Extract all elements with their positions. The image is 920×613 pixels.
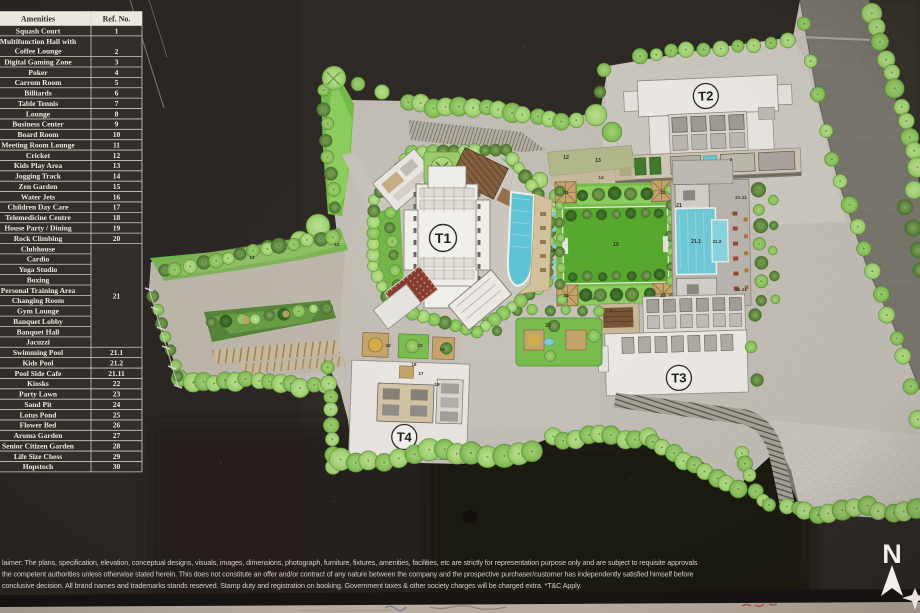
svg-text:24: 24 <box>113 400 121 409</box>
svg-text:21.2: 21.2 <box>110 358 123 367</box>
svg-text:21.1: 21.1 <box>110 348 123 357</box>
svg-text:Hopstoch: Hopstoch <box>23 462 54 471</box>
svg-text:8: 8 <box>115 109 119 118</box>
svg-text:Meeting Room Lounge: Meeting Room Lounge <box>1 140 75 149</box>
svg-text:N: N <box>882 539 902 569</box>
svg-text:16: 16 <box>113 192 121 201</box>
svg-text:21.11: 21.11 <box>108 369 125 378</box>
svg-text:Pool Side Cafe: Pool Side Cafe <box>15 369 62 378</box>
svg-text:Cardio: Cardio <box>27 255 50 264</box>
svg-text:2: 2 <box>115 47 119 56</box>
svg-text:Changing Room: Changing Room <box>12 296 65 305</box>
svg-text:Flower Bed: Flower Bed <box>20 421 58 430</box>
svg-text:Kids Play Area: Kids Play Area <box>14 161 62 170</box>
svg-text:Poker: Poker <box>28 68 48 77</box>
svg-text:Digital Gaming Zone: Digital Gaming Zone <box>4 57 72 66</box>
svg-text:27: 27 <box>113 431 121 440</box>
svg-text:Aroma Garden: Aroma Garden <box>14 431 64 440</box>
svg-text:Banquet Hall: Banquet Hall <box>17 327 60 336</box>
svg-text:18: 18 <box>113 213 121 222</box>
svg-text:Senior Citizen Garden: Senior Citizen Garden <box>2 441 75 450</box>
svg-text:28: 28 <box>113 441 121 450</box>
svg-text:Sand Pit: Sand Pit <box>24 400 52 409</box>
svg-text:3: 3 <box>115 57 119 66</box>
svg-text:Squash Court: Squash Court <box>16 26 61 35</box>
svg-text:Clubhouse: Clubhouse <box>21 244 56 253</box>
svg-text:Water Jets: Water Jets <box>21 192 55 201</box>
svg-text:20: 20 <box>113 234 121 243</box>
svg-text:Children Day Care: Children Day Care <box>8 203 70 212</box>
svg-text:Coffee Lounge: Coffee Lounge <box>15 46 63 55</box>
svg-text:House Party / Dining: House Party / Dining <box>4 224 72 233</box>
svg-text:Business Center: Business Center <box>12 120 64 129</box>
svg-text:19: 19 <box>113 224 121 233</box>
svg-text:Gym Lounge: Gym Lounge <box>17 307 60 316</box>
svg-text:Amenities: Amenities <box>21 15 55 24</box>
svg-text:13: 13 <box>113 161 121 170</box>
svg-text:25: 25 <box>113 410 121 419</box>
svg-text:17: 17 <box>113 203 121 212</box>
svg-text:23: 23 <box>113 390 121 399</box>
svg-text:Banquet Lobby: Banquet Lobby <box>13 317 63 326</box>
svg-text:conclusive decision. All brand: conclusive decision. All brand names and… <box>2 581 582 590</box>
svg-text:1: 1 <box>115 26 119 35</box>
svg-text:9: 9 <box>115 120 119 129</box>
svg-text:Zen Garden: Zen Garden <box>19 182 59 191</box>
svg-text:4: 4 <box>115 68 119 77</box>
svg-text:Jacuzzi: Jacuzzi <box>26 338 50 347</box>
svg-text:Swimming Pool: Swimming Pool <box>13 348 63 357</box>
svg-text:Lounge: Lounge <box>26 109 51 118</box>
svg-text:26: 26 <box>113 421 121 430</box>
svg-text:Rock Climbing: Rock Climbing <box>14 234 63 243</box>
svg-text:Party Lawn: Party Lawn <box>19 390 58 399</box>
svg-text:the competent authorities unle: the competent authorities unless otherwi… <box>2 570 693 579</box>
svg-text:Multifunction Hall with: Multifunction Hall with <box>0 37 77 46</box>
svg-text:6: 6 <box>115 89 119 98</box>
svg-text:Ref. No.: Ref. No. <box>103 15 131 24</box>
svg-text:Billiards: Billiards <box>24 89 52 98</box>
svg-text:15: 15 <box>113 182 121 191</box>
svg-text:Personal Training Area: Personal Training Area <box>1 286 76 295</box>
svg-text:5: 5 <box>115 78 119 87</box>
svg-text:Boxing: Boxing <box>27 275 50 284</box>
svg-text:30: 30 <box>113 462 121 471</box>
svg-text:Kids Pool: Kids Pool <box>22 358 53 367</box>
svg-text:29: 29 <box>113 452 121 461</box>
svg-text:Carrom Room: Carrom Room <box>15 78 62 87</box>
svg-text:Telemedicine Centre: Telemedicine Centre <box>5 213 71 222</box>
svg-text:10: 10 <box>113 130 121 139</box>
svg-text:12: 12 <box>113 151 121 160</box>
svg-text:22: 22 <box>113 379 121 388</box>
svg-text:Jogging Track: Jogging Track <box>15 172 62 181</box>
svg-text:7: 7 <box>115 99 119 108</box>
svg-text:14: 14 <box>113 172 121 181</box>
svg-text:Life Size Chess: Life Size Chess <box>14 452 62 461</box>
svg-text:21: 21 <box>113 291 121 300</box>
svg-text:Lotus Pond: Lotus Pond <box>20 410 58 419</box>
svg-text:laimer: The plans, specificati: laimer: The plans, specification, elevat… <box>2 558 698 567</box>
svg-text:Board Room: Board Room <box>17 130 59 139</box>
svg-text:Yoga Studio: Yoga Studio <box>19 265 58 274</box>
svg-text:Table Tennis: Table Tennis <box>18 99 58 108</box>
svg-text:Cricket: Cricket <box>26 151 51 160</box>
svg-text:11: 11 <box>113 140 120 149</box>
svg-text:Kiosks: Kiosks <box>27 379 49 388</box>
